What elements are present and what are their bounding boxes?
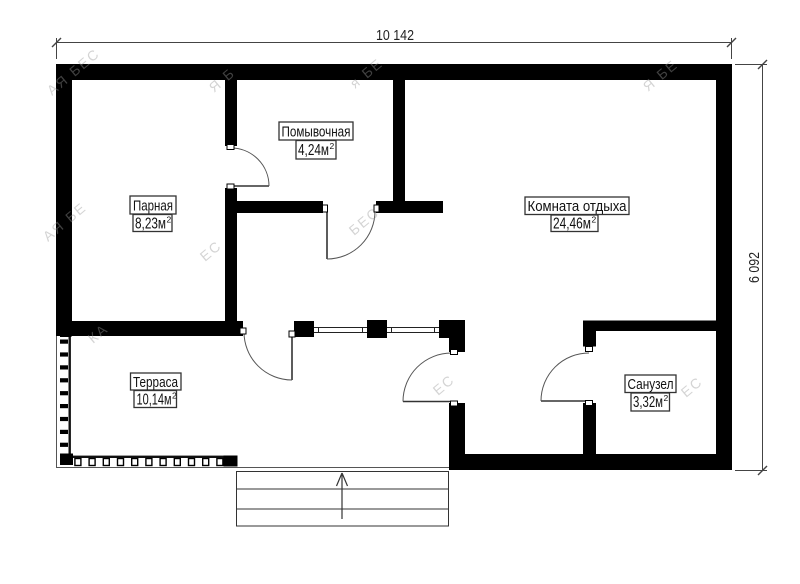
svg-text:2: 2 — [664, 393, 669, 403]
svg-text:Комната отдыха: Комната отдыха — [528, 198, 628, 215]
svg-text:Санузел: Санузел — [628, 376, 674, 393]
svg-text:3,32м: 3,32м — [633, 394, 663, 411]
svg-text:6 092: 6 092 — [747, 252, 763, 283]
svg-text:2: 2 — [172, 391, 177, 401]
svg-text:Помывочная: Помывочная — [282, 124, 351, 141]
svg-text:2: 2 — [167, 215, 172, 225]
svg-text:10,14м: 10,14м — [137, 392, 172, 409]
svg-text:Парная: Парная — [133, 198, 173, 215]
svg-text:10 142: 10 142 — [376, 28, 414, 44]
svg-text:2: 2 — [592, 215, 597, 225]
svg-text:4,24м: 4,24м — [298, 142, 329, 159]
svg-text:2: 2 — [330, 141, 335, 151]
svg-text:8,23м: 8,23м — [135, 216, 166, 233]
svg-text:Терраса: Терраса — [133, 374, 179, 391]
svg-text:24,46м: 24,46м — [553, 216, 591, 233]
